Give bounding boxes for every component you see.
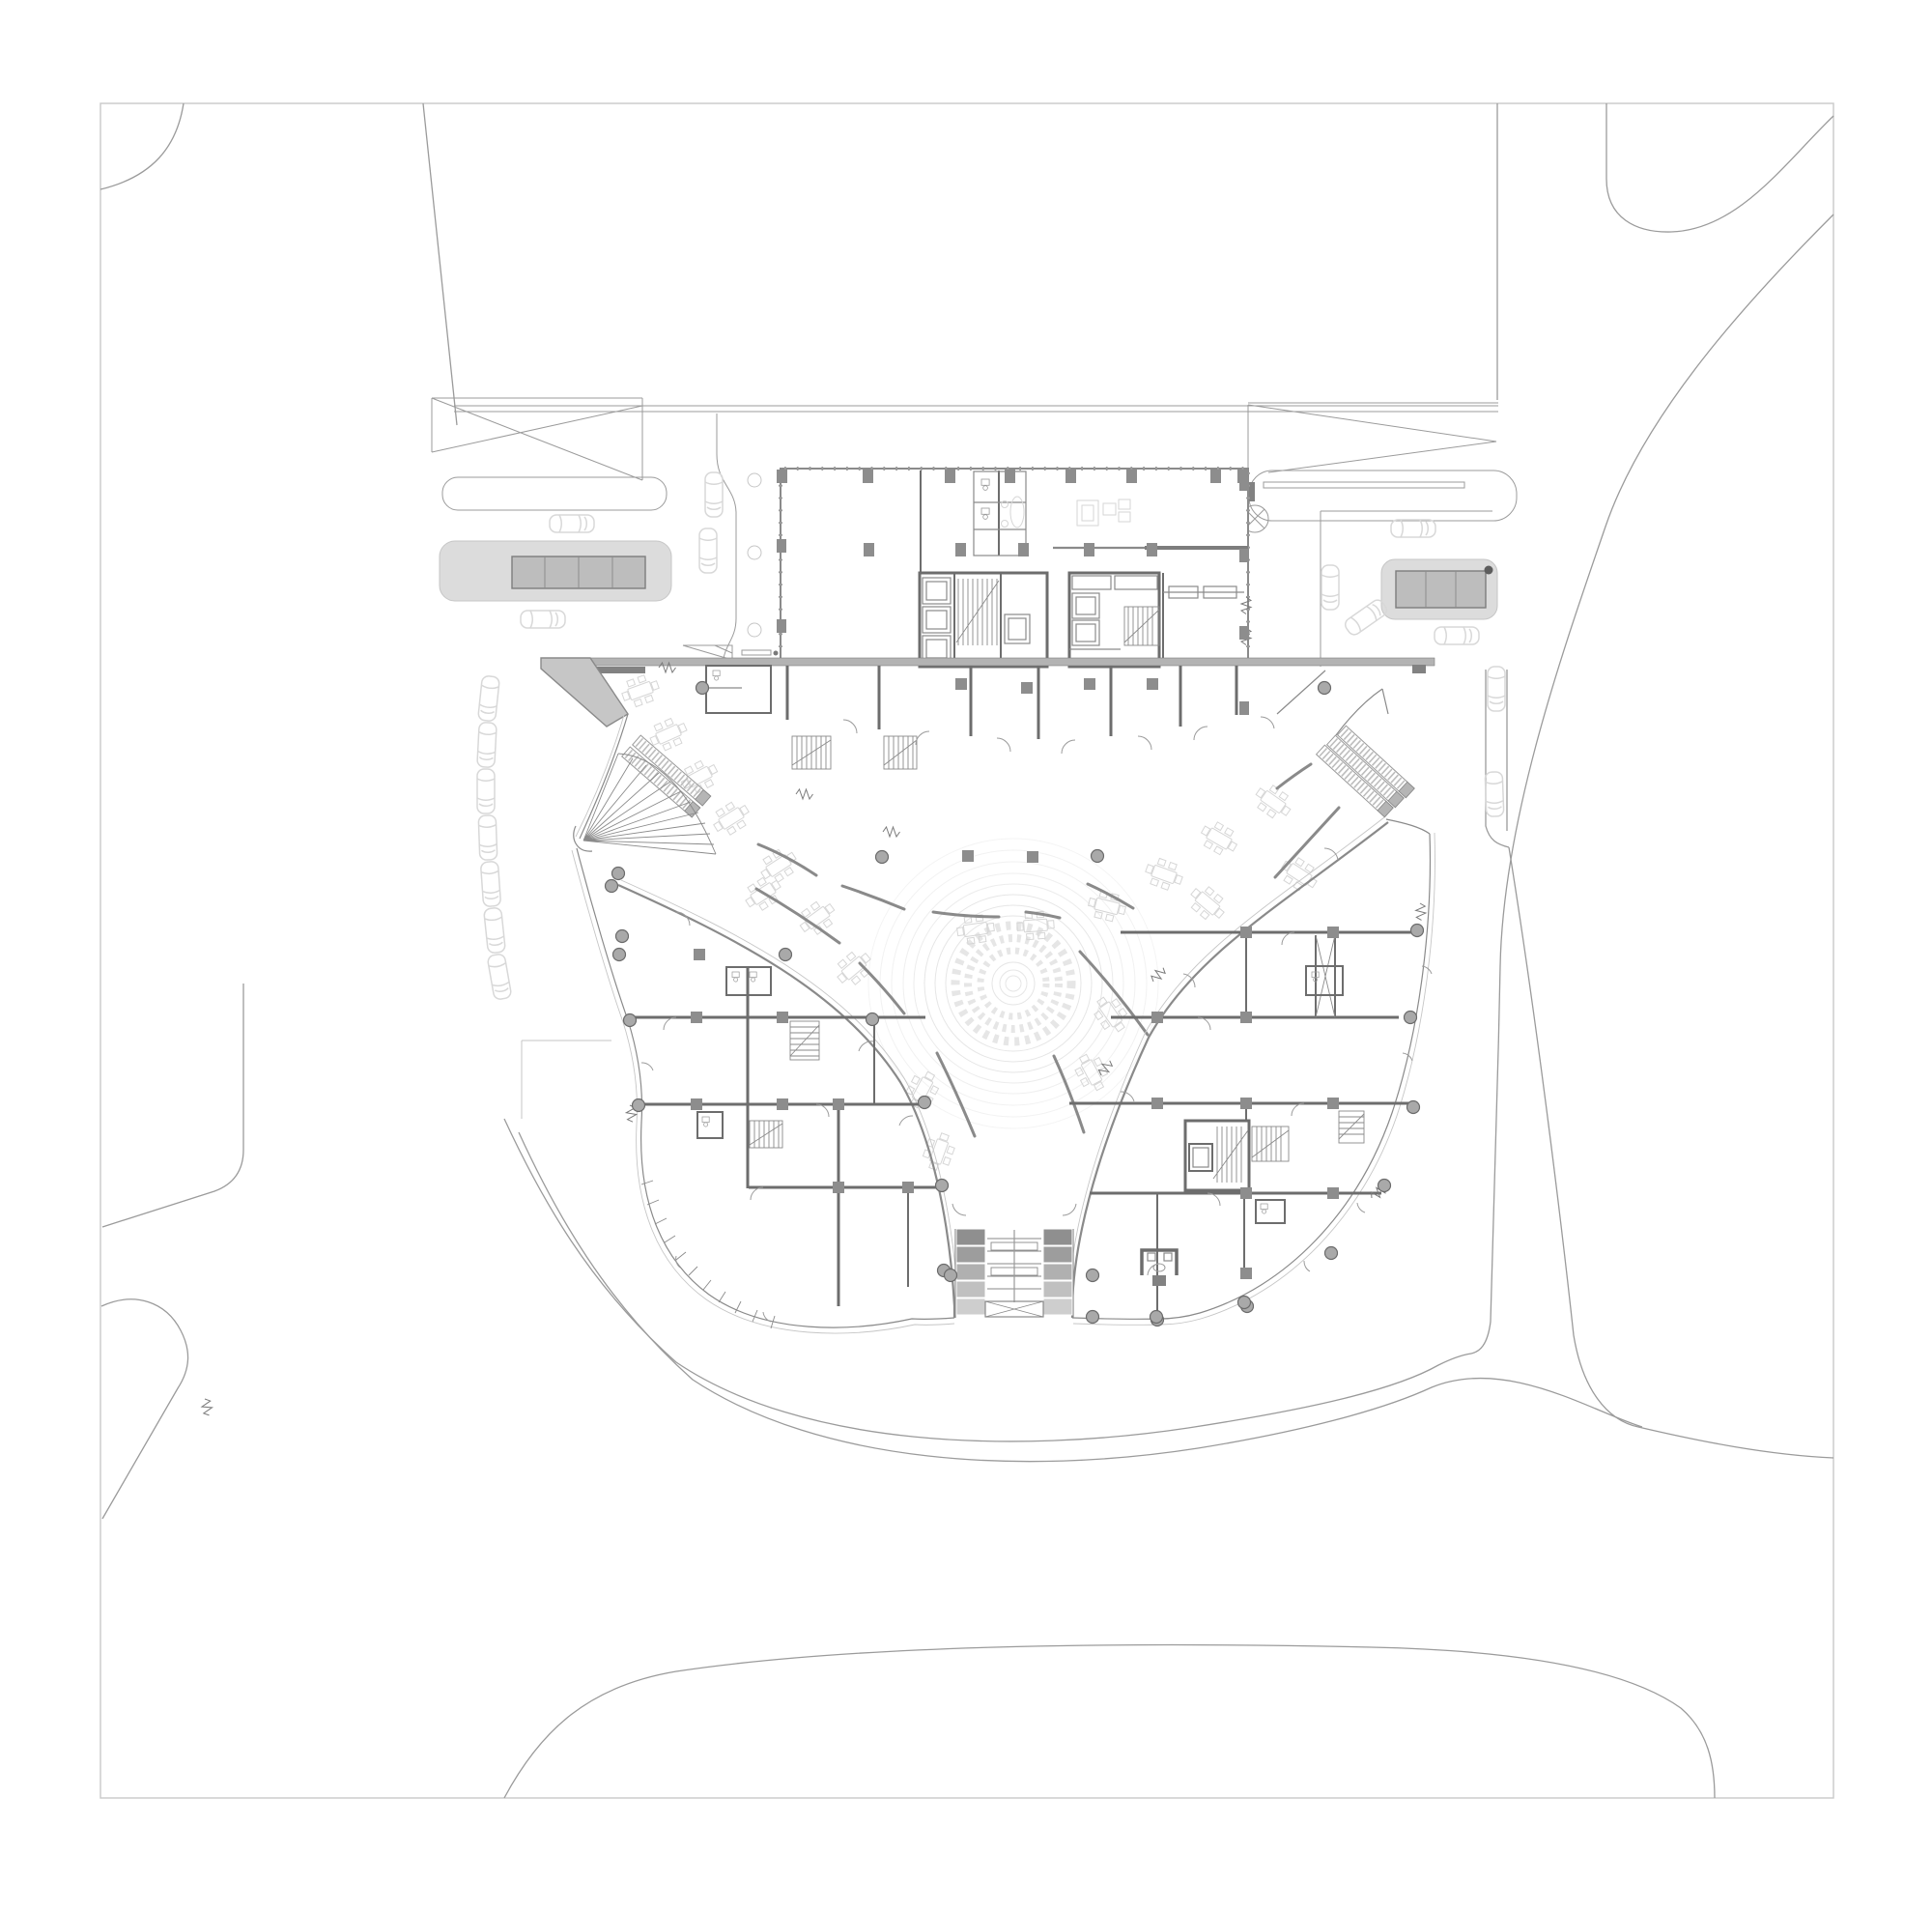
shop-stair-b (884, 736, 917, 769)
wing-right (1069, 819, 1435, 1325)
wing-right-core (1185, 1121, 1249, 1190)
canopy (541, 658, 1435, 735)
bench-walls (756, 764, 1339, 1136)
curb-slot (1264, 482, 1464, 488)
atrium-door-arcs (676, 848, 1338, 1215)
parking-right (1241, 471, 1517, 619)
wing-left-stair-a (750, 1121, 782, 1148)
wing-left (572, 848, 954, 1333)
tower-floor-plate (748, 469, 1248, 667)
grand-stair (955, 1229, 1073, 1318)
shop-stubs (706, 666, 1274, 769)
parking-left (440, 477, 671, 601)
round-columns (606, 682, 1424, 1326)
site-roads (100, 103, 1833, 1798)
expansion-joints (200, 597, 1426, 1416)
pad-dot (1485, 566, 1493, 575)
seating-clusters (618, 671, 1321, 1173)
sheet-frame (100, 103, 1833, 1798)
plaza-boundary (522, 1041, 611, 1119)
site-plan-drawing (0, 0, 1932, 1911)
plan-sheet (0, 0, 1932, 1911)
pad-bar-right (1396, 571, 1486, 608)
shop-stair-a (792, 736, 831, 769)
wing-right-stair-b (1252, 1127, 1289, 1161)
escalator-bank-right (1317, 726, 1415, 816)
drop-off-curb-right (1249, 471, 1517, 521)
spiral-court (868, 839, 1158, 1128)
wing-left-stair-b (790, 1021, 819, 1060)
glazing-band (641, 1181, 775, 1328)
top-strip (454, 406, 1498, 412)
ramp-hatch-right (1248, 403, 1498, 472)
drop-off-curb-left (442, 477, 667, 510)
site-bar (742, 650, 771, 655)
wing-right-stair-c (1339, 1111, 1364, 1143)
escalator-bank-left (622, 735, 711, 817)
site-dot (774, 651, 779, 656)
ramp-hatch-left (432, 398, 642, 480)
revolving-entrance (1142, 1250, 1177, 1286)
